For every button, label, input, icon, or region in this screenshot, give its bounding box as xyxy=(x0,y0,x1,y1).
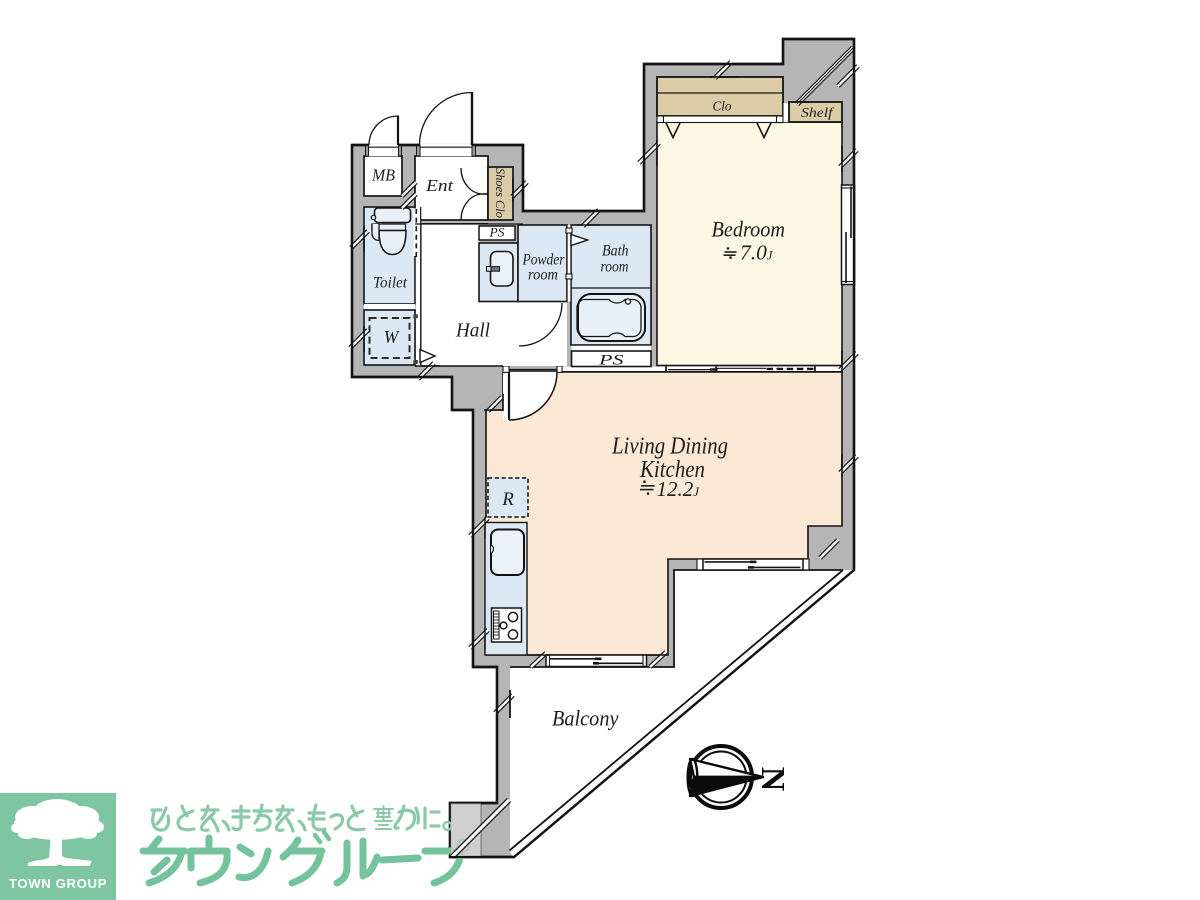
svg-text:PS: PS xyxy=(598,352,625,368)
svg-text:R: R xyxy=(501,489,514,510)
svg-text:Ent: Ent xyxy=(425,176,455,195)
svg-text:room: room xyxy=(601,258,629,275)
svg-text:TOWN GROUP: TOWN GROUP xyxy=(9,876,107,891)
svg-text:room: room xyxy=(528,266,558,283)
svg-text:Toilet: Toilet xyxy=(373,275,408,292)
svg-text:Hall: Hall xyxy=(455,321,490,342)
svg-text:N: N xyxy=(754,767,791,792)
svg-text:Bath: Bath xyxy=(602,243,629,260)
svg-text:Living Dining: Living Dining xyxy=(611,434,728,460)
svg-text:PS: PS xyxy=(488,224,505,239)
svg-text:MB: MB xyxy=(371,166,396,185)
svg-text:Bedroom: Bedroom xyxy=(712,217,786,242)
svg-text:Clo: Clo xyxy=(713,100,732,115)
svg-text:Balcony: Balcony xyxy=(552,706,619,731)
svg-text:Shelf: Shelf xyxy=(801,106,835,121)
svg-text:Shoes Clo: Shoes Clo xyxy=(493,168,507,218)
svg-text:W: W xyxy=(384,327,400,347)
